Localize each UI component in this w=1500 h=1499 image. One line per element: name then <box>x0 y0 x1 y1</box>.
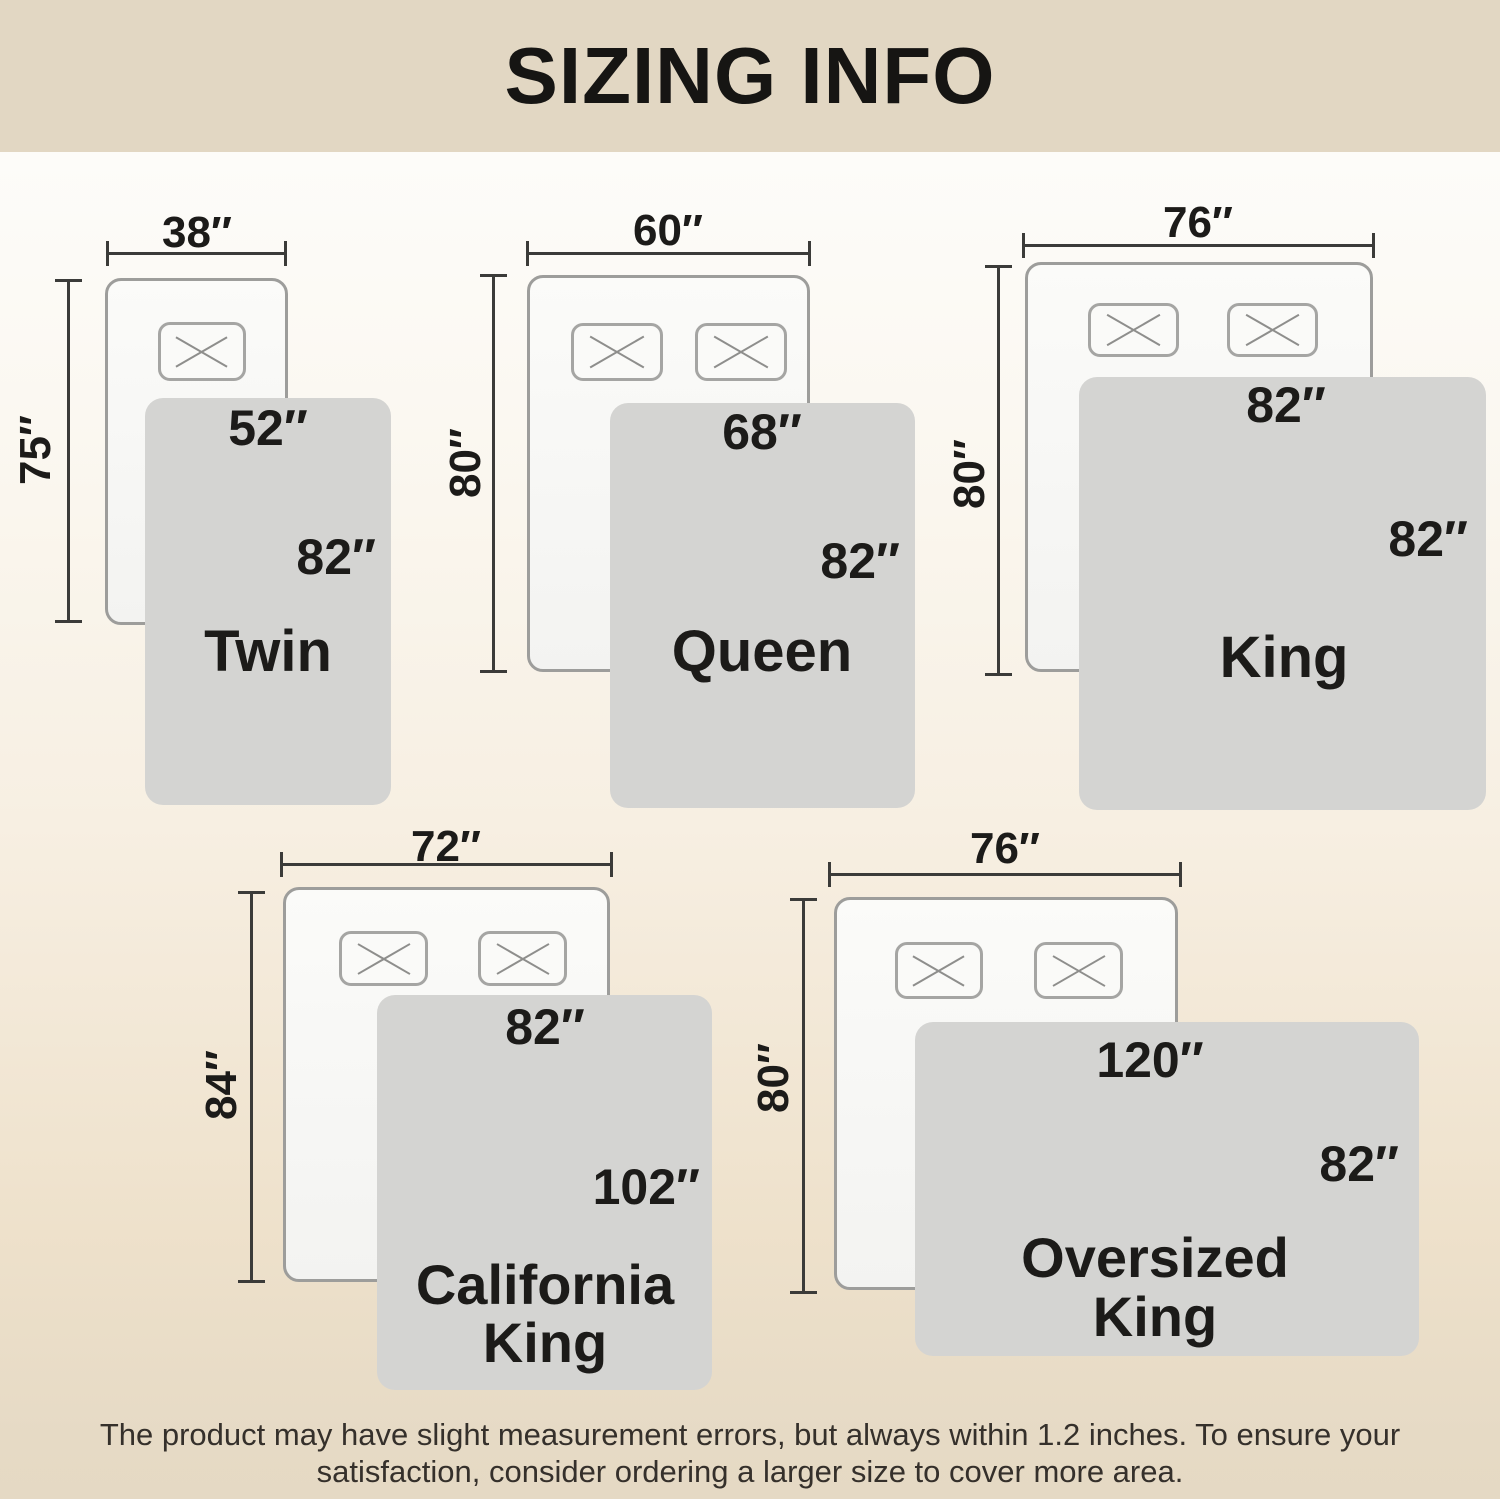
pillow-icon <box>478 931 567 986</box>
queen-length-dimension-line <box>492 275 495 672</box>
california-king-size-name-label: California King <box>416 1256 674 1372</box>
king-length-dimension-line <box>997 266 1000 675</box>
pillow-icon <box>1227 303 1318 357</box>
queen-blanket-rect <box>610 403 915 808</box>
oversized-king-size-name-label: Oversized King <box>1021 1228 1289 1346</box>
california-king-bed-width-label: 72″ <box>411 822 481 872</box>
queen-bed-length-label: 80″ <box>441 428 491 498</box>
pillow-icon <box>339 931 428 986</box>
oversized-king-bed-width-label: 76″ <box>970 824 1040 874</box>
king-bed-width-label: 76″ <box>1163 198 1233 248</box>
king-blanket-width-label: 82″ <box>1246 376 1326 434</box>
queen-blanket-width-label: 68″ <box>722 403 802 461</box>
size-name-line: King <box>416 1314 674 1372</box>
twin-blanket-length-label: 82″ <box>296 528 376 586</box>
oversized-king-bed-length-label: 80″ <box>749 1043 799 1113</box>
pillow-icon <box>695 323 787 381</box>
pillow-icon <box>158 322 246 381</box>
king-blanket-length-label: 82″ <box>1388 510 1468 568</box>
california-king-bed-length-label: 84″ <box>197 1050 247 1120</box>
oversized-king-blanket-width-label: 120″ <box>1096 1031 1203 1089</box>
pillow-icon <box>895 942 983 999</box>
california-king-blanket-length-label: 102″ <box>593 1158 700 1216</box>
disclaimer-line-2: satisfaction, consider ordering a larger… <box>0 1453 1500 1490</box>
king-size-name-label: King <box>1220 628 1349 688</box>
oversized-king-blanket-length-label: 82″ <box>1319 1135 1399 1193</box>
twin-size-name-label: Twin <box>204 622 332 682</box>
twin-bed-width-label: 38″ <box>162 208 232 258</box>
king-blanket-rect <box>1079 377 1486 810</box>
disclaimer-text: The product may have slight measurement … <box>0 1416 1500 1490</box>
size-name-line: King <box>1021 1287 1289 1346</box>
twin-length-dimension-line <box>67 280 70 622</box>
twin-bed-length-label: 75″ <box>11 415 61 485</box>
king-bed-length-label: 80″ <box>945 439 995 509</box>
page-title: SIZING INFO <box>505 30 996 122</box>
header-band: SIZING INFO <box>0 0 1500 152</box>
oversized-king-length-dimension-line <box>802 899 805 1293</box>
disclaimer-line-1: The product may have slight measurement … <box>0 1416 1500 1453</box>
pillow-icon <box>1088 303 1179 357</box>
twin-blanket-rect <box>145 398 391 805</box>
size-name-line: California <box>416 1256 674 1314</box>
pillow-icon <box>1034 942 1123 999</box>
california-king-length-dimension-line <box>250 892 253 1282</box>
queen-blanket-length-label: 82″ <box>820 532 900 590</box>
queen-bed-width-label: 60″ <box>633 206 703 256</box>
twin-blanket-width-label: 52″ <box>228 399 308 457</box>
queen-size-name-label: Queen <box>672 622 853 682</box>
california-king-blanket-width-label: 82″ <box>505 998 585 1056</box>
pillow-icon <box>571 323 663 381</box>
size-name-line: Oversized <box>1021 1228 1289 1287</box>
